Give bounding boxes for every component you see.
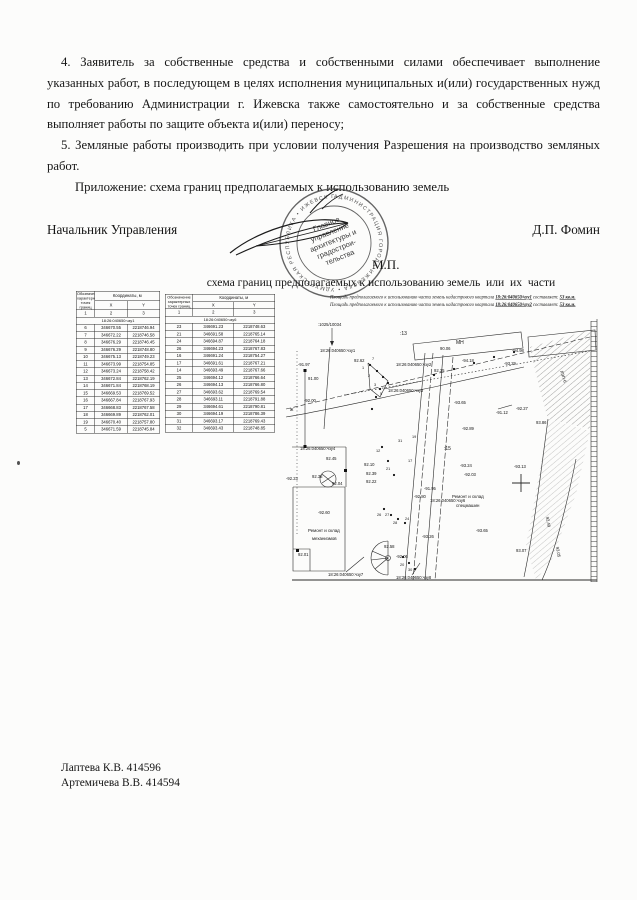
point-number: 12 (76, 368, 95, 375)
coord-x: 346693.43 (193, 425, 234, 432)
coord-x: 346671.59 (95, 426, 128, 433)
table-row: 24346694.872218764.18 (165, 338, 275, 345)
map-label: 92.39 (366, 471, 377, 476)
map-label: 93.05 (555, 546, 562, 558)
coord-x: 346693.62 (193, 389, 234, 396)
coord-x: 346673.24 (95, 368, 128, 375)
map-label: 93.07 (516, 548, 527, 553)
map-label: МН (456, 340, 464, 346)
point-number: 17 (76, 404, 95, 411)
coord-x: 346670.40 (95, 419, 128, 426)
point-number: 16 (165, 352, 193, 359)
point-number: 10 (76, 353, 95, 360)
table-row: 17346668.832218767.58 (76, 404, 160, 411)
point-number: 28 (165, 396, 193, 403)
point-number: 13 (76, 375, 95, 382)
map-label: -94.18 (462, 358, 475, 363)
point-number: 7 (76, 332, 95, 339)
map-label: -93.13 (514, 464, 527, 469)
coord-y: 2218758.42 (127, 368, 160, 375)
coord-y: 2218762.01 (127, 411, 160, 418)
map-label: -93.65 (476, 528, 489, 533)
map-label: 21 (386, 467, 390, 471)
map-label: 2 (368, 374, 370, 378)
cadastral-number: 18:26:040650/чзу2 (495, 303, 532, 308)
map-label: -92.00 (304, 398, 317, 403)
executor-name: Артемичева В.В. 414594 (61, 776, 180, 791)
map-label: -91.12 (496, 410, 509, 415)
table-row: 26346694.132218766.80 (165, 381, 275, 388)
coord-x: 346694.19 (193, 410, 234, 417)
coord-y: 2218762.19 (127, 375, 160, 382)
point-number: 32 (165, 425, 193, 432)
coord-x: 346694.23 (193, 345, 234, 352)
coord-y: 2218769.54 (234, 389, 275, 396)
coord-y: 2218746.94 (127, 324, 160, 331)
table-row: 9346676.292218748.80 (76, 346, 160, 353)
table-row: 25346694.122218766.64 (165, 374, 275, 381)
point-number: 14 (76, 382, 95, 389)
coord-x: 346669.89 (95, 411, 128, 418)
map-label: -92.03 (464, 472, 477, 477)
map-label: 1 (362, 366, 364, 370)
map-label: 18:26:040650:чзу3 (388, 388, 424, 393)
map-label: 92.35 (434, 368, 445, 373)
map-label: 26 (377, 513, 381, 517)
table-row: 18346669.892218762.01 (76, 411, 160, 418)
table-row: 23346691.232218748.63 (165, 323, 275, 330)
table-row: 123 (165, 309, 275, 316)
map-label: -92.27 (516, 406, 529, 411)
table-row: 19346670.402218757.80 (76, 419, 160, 426)
slope-hatch (530, 330, 590, 429)
coord-y: 2218768.19 (127, 382, 160, 389)
point-number: 29 (165, 403, 193, 410)
table-row: 15346669.532218769.52 (76, 390, 160, 397)
point-number: 14 (165, 367, 193, 374)
table-row: 6346670.552218746.94 (76, 324, 160, 331)
coord-y: 2218748.80 (127, 346, 160, 353)
coord-y: 2218754.27 (234, 352, 275, 359)
point-number: 16 (76, 397, 95, 404)
map-label: 7 (372, 357, 374, 361)
coord-x: 346691.23 (193, 323, 234, 330)
table-row: 123 (76, 310, 160, 317)
coord-y: 2218764.18 (234, 338, 275, 345)
point-number: 6 (76, 324, 95, 331)
table-row: 29346694.612218790.81 (165, 403, 275, 410)
map-label: 90.06 (440, 346, 451, 351)
coord-x: 346669.53 (95, 390, 128, 397)
coord-y: 2218767.58 (127, 404, 160, 411)
table-row: 5346671.592218745.84 (76, 426, 160, 433)
table-row: 14346671.842218768.19 (76, 382, 160, 389)
table-row: 32346693.432218748.85 (165, 425, 275, 432)
map-label: 92.45 (326, 456, 337, 461)
map-label: 92.62 (354, 358, 365, 363)
point-number: 11 (76, 361, 95, 368)
coord-x: 346694.13 (193, 381, 234, 388)
map-label: 30 (408, 568, 412, 572)
map-label: Ремонт и склад (452, 494, 484, 499)
building-mn (413, 332, 523, 360)
map-label: 91.00 (308, 376, 319, 381)
coord-y: 2218767.21 (234, 360, 275, 367)
coord-y: 2218790.81 (234, 403, 275, 410)
coord-y: 2218767.66 (234, 367, 275, 374)
table-row: 13346672.842218762.19 (76, 375, 160, 382)
coord-y: 2218748.85 (234, 425, 275, 432)
coord-x: 346672.22 (95, 332, 128, 339)
point-number: 17 (165, 360, 193, 367)
map-label: ж (290, 407, 294, 413)
coord-y: 2218765.14 (234, 331, 275, 338)
paragraph-4: 4. Заявитель за собственные средства и с… (47, 52, 600, 135)
coord-x: 346694.87 (193, 338, 234, 345)
table-row: 31346693.172218769.43 (165, 418, 275, 425)
map-label: 3 (374, 383, 376, 387)
coord-y: 2218757.80 (127, 419, 160, 426)
coord-x: 346691.61 (193, 360, 234, 367)
map-label: -92.23 (286, 476, 299, 481)
point-number: 9 (76, 346, 95, 353)
table-row: 14346693.492218767.66 (165, 367, 275, 374)
coord-x: 346672.84 (95, 375, 128, 382)
coord-x: 346671.84 (95, 382, 128, 389)
table-row: 21346691.582218765.14 (165, 331, 275, 338)
point-number: 8 (76, 339, 95, 346)
coord-x: 346670.55 (95, 324, 128, 331)
table-row: 7346672.222218746.58 (76, 332, 160, 339)
coord-x: 346694.61 (193, 403, 234, 410)
coord-y: 2218748.63 (234, 323, 275, 330)
map-label: 18:26:040650:чзу8 (396, 575, 432, 580)
scheme-title: схема границ предполагаемых к использова… (160, 276, 602, 289)
position-title: Начальник Управления (47, 222, 177, 238)
map-label: -92.60 (318, 510, 331, 515)
map-label: -92.06 (396, 554, 409, 559)
map-label: -92.80 (414, 494, 427, 499)
map-label: -94.98 (512, 348, 525, 353)
map-label: 24 (405, 517, 409, 521)
coords-table: Обозначение характерных точек границКоор… (165, 294, 275, 432)
coord-x: 346673.99 (95, 361, 128, 368)
coord-x: 346691.24 (193, 352, 234, 359)
coord-y: 2218767.83 (234, 345, 275, 352)
scan-speck (17, 461, 20, 465)
map-label: 18:26:040650:чзу1 (320, 348, 356, 353)
coord-y: 2218786.39 (234, 410, 275, 417)
signer-name: Д.П. Фомин (532, 222, 600, 238)
map-label: 92.01 (298, 552, 309, 557)
map-label: 93.86 (536, 420, 547, 425)
point-number: 18 (76, 411, 95, 418)
coord-x: 346693.11 (193, 396, 234, 403)
table-row: Обозначение характерных точек границКоор… (76, 291, 160, 300)
map-label: 92.58 (384, 544, 395, 549)
table-row: 30346694.192218786.39 (165, 410, 275, 417)
map-label: 12 (376, 449, 380, 453)
map-label: 27 (385, 513, 389, 517)
table-row: Обозначение характерных точек границКоор… (165, 294, 275, 301)
paragraph-5: 5. Земляные работы производить при услов… (47, 135, 600, 177)
coord-x: 346675.13 (95, 353, 128, 360)
point-number: 27 (165, 389, 193, 396)
coord-y: 2218766.64 (234, 374, 275, 381)
map-label: 31 (398, 439, 402, 443)
coord-x: 346691.58 (193, 331, 234, 338)
map-labels: :1025/1003418:26:040650:чзу1:1390.06МН92… (286, 322, 568, 580)
map-label: :15 (444, 446, 451, 452)
coord-x: 346693.49 (193, 367, 234, 374)
point-number: 26 (165, 345, 193, 352)
cadastral-number: 18:26:040650/чзу1 (495, 295, 532, 300)
point-number: 25 (165, 374, 193, 381)
coord-y: 2218745.84 (127, 426, 160, 433)
table-row: 26346694.232218767.83 (165, 345, 275, 352)
table-row: 27346693.622218769.54 (165, 389, 275, 396)
point-number: 5 (76, 426, 95, 433)
map-label: 92.22 (366, 479, 377, 484)
coord-y: 2218749.23 (127, 353, 160, 360)
map-label: 18:26:040650:чзу2 (396, 362, 432, 367)
coord-x: 346694.12 (193, 374, 234, 381)
point-number: 24 (165, 338, 193, 345)
coord-y: 2218746.58 (127, 332, 160, 339)
body-text: 4. Заявитель за собственные средства и с… (47, 52, 600, 198)
table-row: 11346673.992218754.85 (76, 361, 160, 368)
coord-x: 346676.29 (95, 346, 128, 353)
map-label: -93.26 (422, 534, 435, 539)
map-label: 18:26:040650:чзу7 (328, 572, 364, 577)
map-label: 92.10 (364, 462, 375, 467)
point-number: 26 (165, 381, 193, 388)
map-label: 92.04 (332, 481, 343, 486)
coord-x: 346668.83 (95, 404, 128, 411)
table-row: 12346673.242218758.42 (76, 368, 160, 375)
coord-x: 346693.17 (193, 418, 234, 425)
area-value: 53 кв.м. (560, 295, 576, 300)
table-row: 18:26:040650:чзу1 (76, 317, 160, 324)
coord-y: 2218769.52 (127, 390, 160, 397)
area-value: 53 кв.м. (560, 303, 576, 308)
map-label: -92.89 (462, 426, 475, 431)
coord-y: 2218746.45 (127, 339, 160, 346)
table-row: 17346691.612218767.21 (165, 360, 275, 367)
map-label: -91.97 (298, 362, 311, 367)
map-label: 17 (408, 459, 412, 463)
map-label: 20 (400, 563, 404, 567)
point-number: 23 (165, 323, 193, 330)
map-label: 18:26:040650:чзу4 (300, 446, 336, 451)
point-number: 19 (76, 419, 95, 426)
map-label: 5 (380, 392, 382, 396)
table-row: 16346691.242218754.27 (165, 352, 275, 359)
seal-mark: М.П. (372, 257, 399, 273)
map-label: 28 (393, 521, 397, 525)
map-label: -93.65 (454, 400, 467, 405)
coord-y: 2218767.93 (127, 397, 160, 404)
boundary-scheme-map: :1025/1003418:26:040650:чзу1:1390.06МН92… (284, 319, 602, 587)
map-label: 19 (412, 435, 416, 439)
coord-x: 346667.84 (95, 397, 128, 404)
map-label: спецмашин (456, 503, 480, 508)
map-label: :1025/10034 (318, 322, 342, 327)
coord-y: 2218769.43 (234, 418, 275, 425)
point-number: 21 (165, 331, 193, 338)
executor-name: Лаптева К.В. 414596 (61, 761, 180, 776)
map-label: Ремонт и склад (308, 528, 340, 533)
map-label: :13 (400, 331, 407, 337)
point-number: 31 (165, 418, 193, 425)
footer-names: Лаптева К.В. 414596 Артемичева В.В. 4145… (61, 761, 180, 790)
coords-table: Обозначение характерных точек границКоор… (76, 291, 160, 433)
coord-y: 2218791.88 (234, 396, 275, 403)
table-row: 18:26:040650:чзу6 (165, 316, 275, 323)
point-number: 15 (76, 390, 95, 397)
coord-y: 2218754.85 (127, 361, 160, 368)
coord-y: 2218766.80 (234, 381, 275, 388)
point-number: 30 (165, 410, 193, 417)
map-label: -93.29 (504, 361, 517, 366)
map-label: механизмов (312, 536, 337, 541)
table-row: 8346676.292218746.45 (76, 339, 160, 346)
table-row: 28346693.112218791.88 (165, 396, 275, 403)
map-label: -91.95 (424, 486, 437, 491)
table-row: 10346675.132218749.23 (76, 353, 160, 360)
table-row: 16346667.842218767.93 (76, 397, 160, 404)
coord-x: 346676.29 (95, 339, 128, 346)
map-label: -93.24 (460, 463, 473, 468)
map-label: 92.38 (312, 474, 323, 479)
document-page: 4. Заявитель за собственные средства и с… (0, 0, 637, 900)
